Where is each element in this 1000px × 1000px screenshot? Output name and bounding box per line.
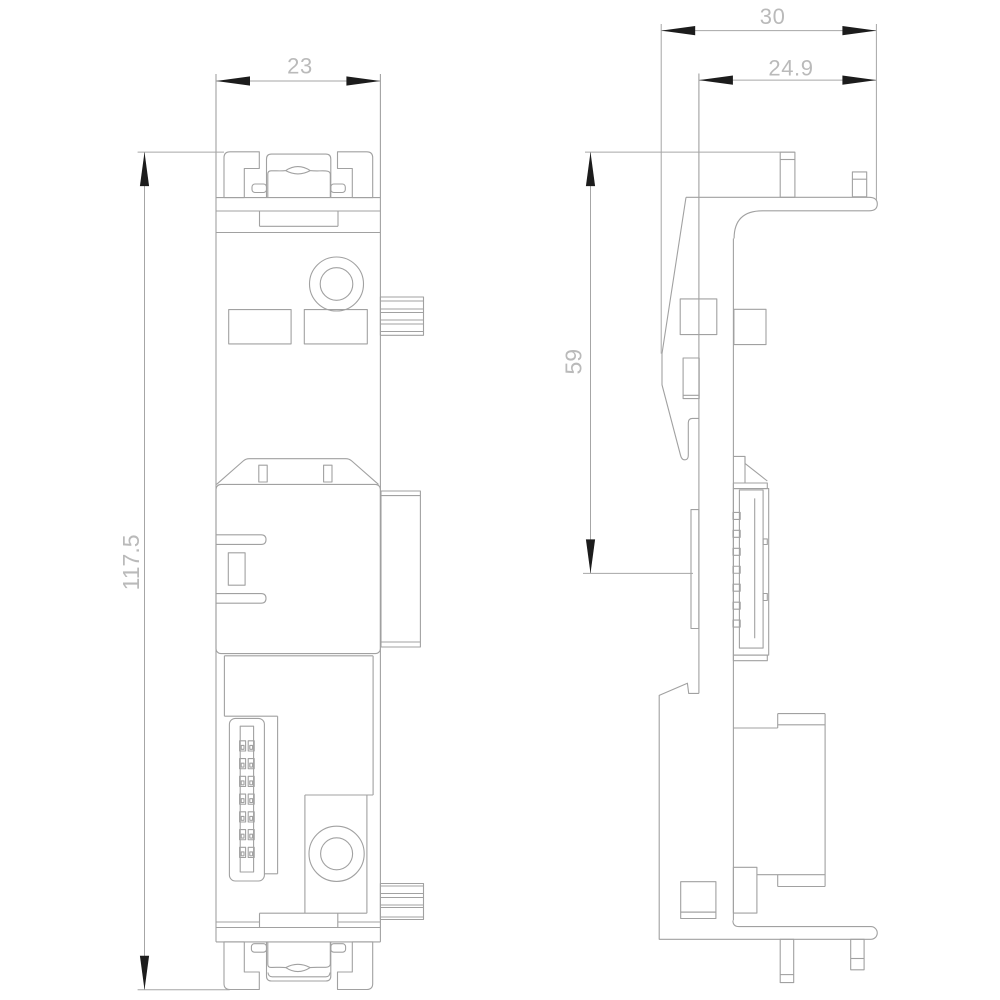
svg-text:117.5: 117.5	[118, 534, 144, 590]
svg-text:24.9: 24.9	[768, 56, 813, 81]
svg-text:59: 59	[560, 349, 586, 375]
svg-text:23: 23	[287, 54, 313, 79]
svg-text:30: 30	[760, 4, 786, 29]
